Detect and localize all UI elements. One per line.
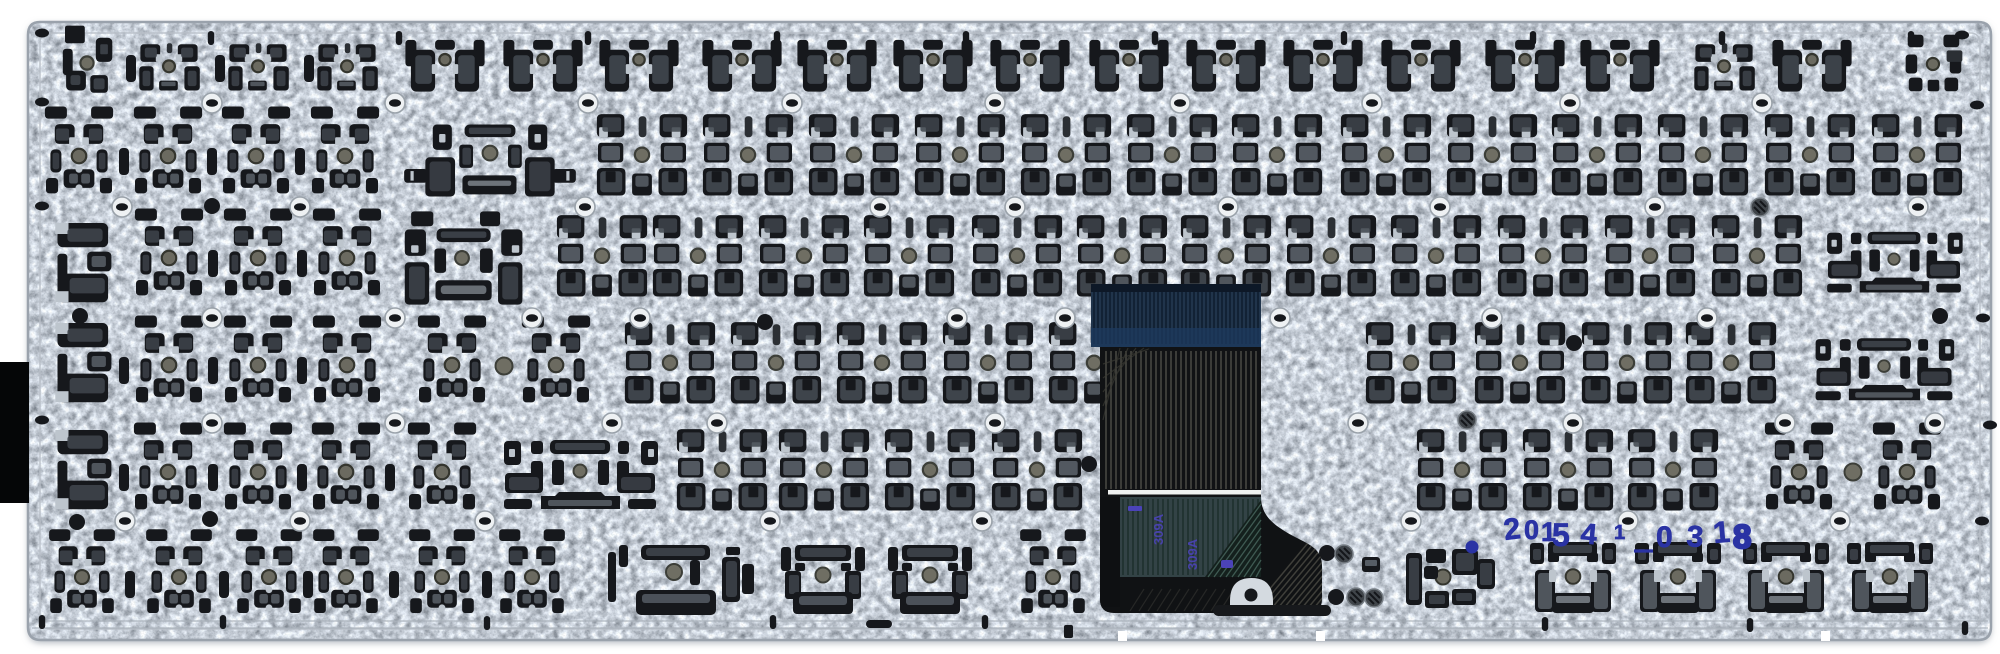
svg-text:1: 1 — [1712, 516, 1732, 550]
svg-text:1: 1 — [1614, 522, 1625, 544]
svg-text:0: 0 — [1524, 515, 1539, 545]
svg-text:4: 4 — [1579, 518, 1598, 551]
svg-text:5: 5 — [1552, 517, 1570, 553]
svg-text:8: 8 — [1733, 518, 1751, 555]
svg-text:3: 3 — [1686, 520, 1705, 554]
svg-text:309A: 309A — [1185, 538, 1200, 570]
svg-text:0: 0 — [1656, 521, 1673, 554]
svg-text:309A: 309A — [1151, 513, 1166, 545]
